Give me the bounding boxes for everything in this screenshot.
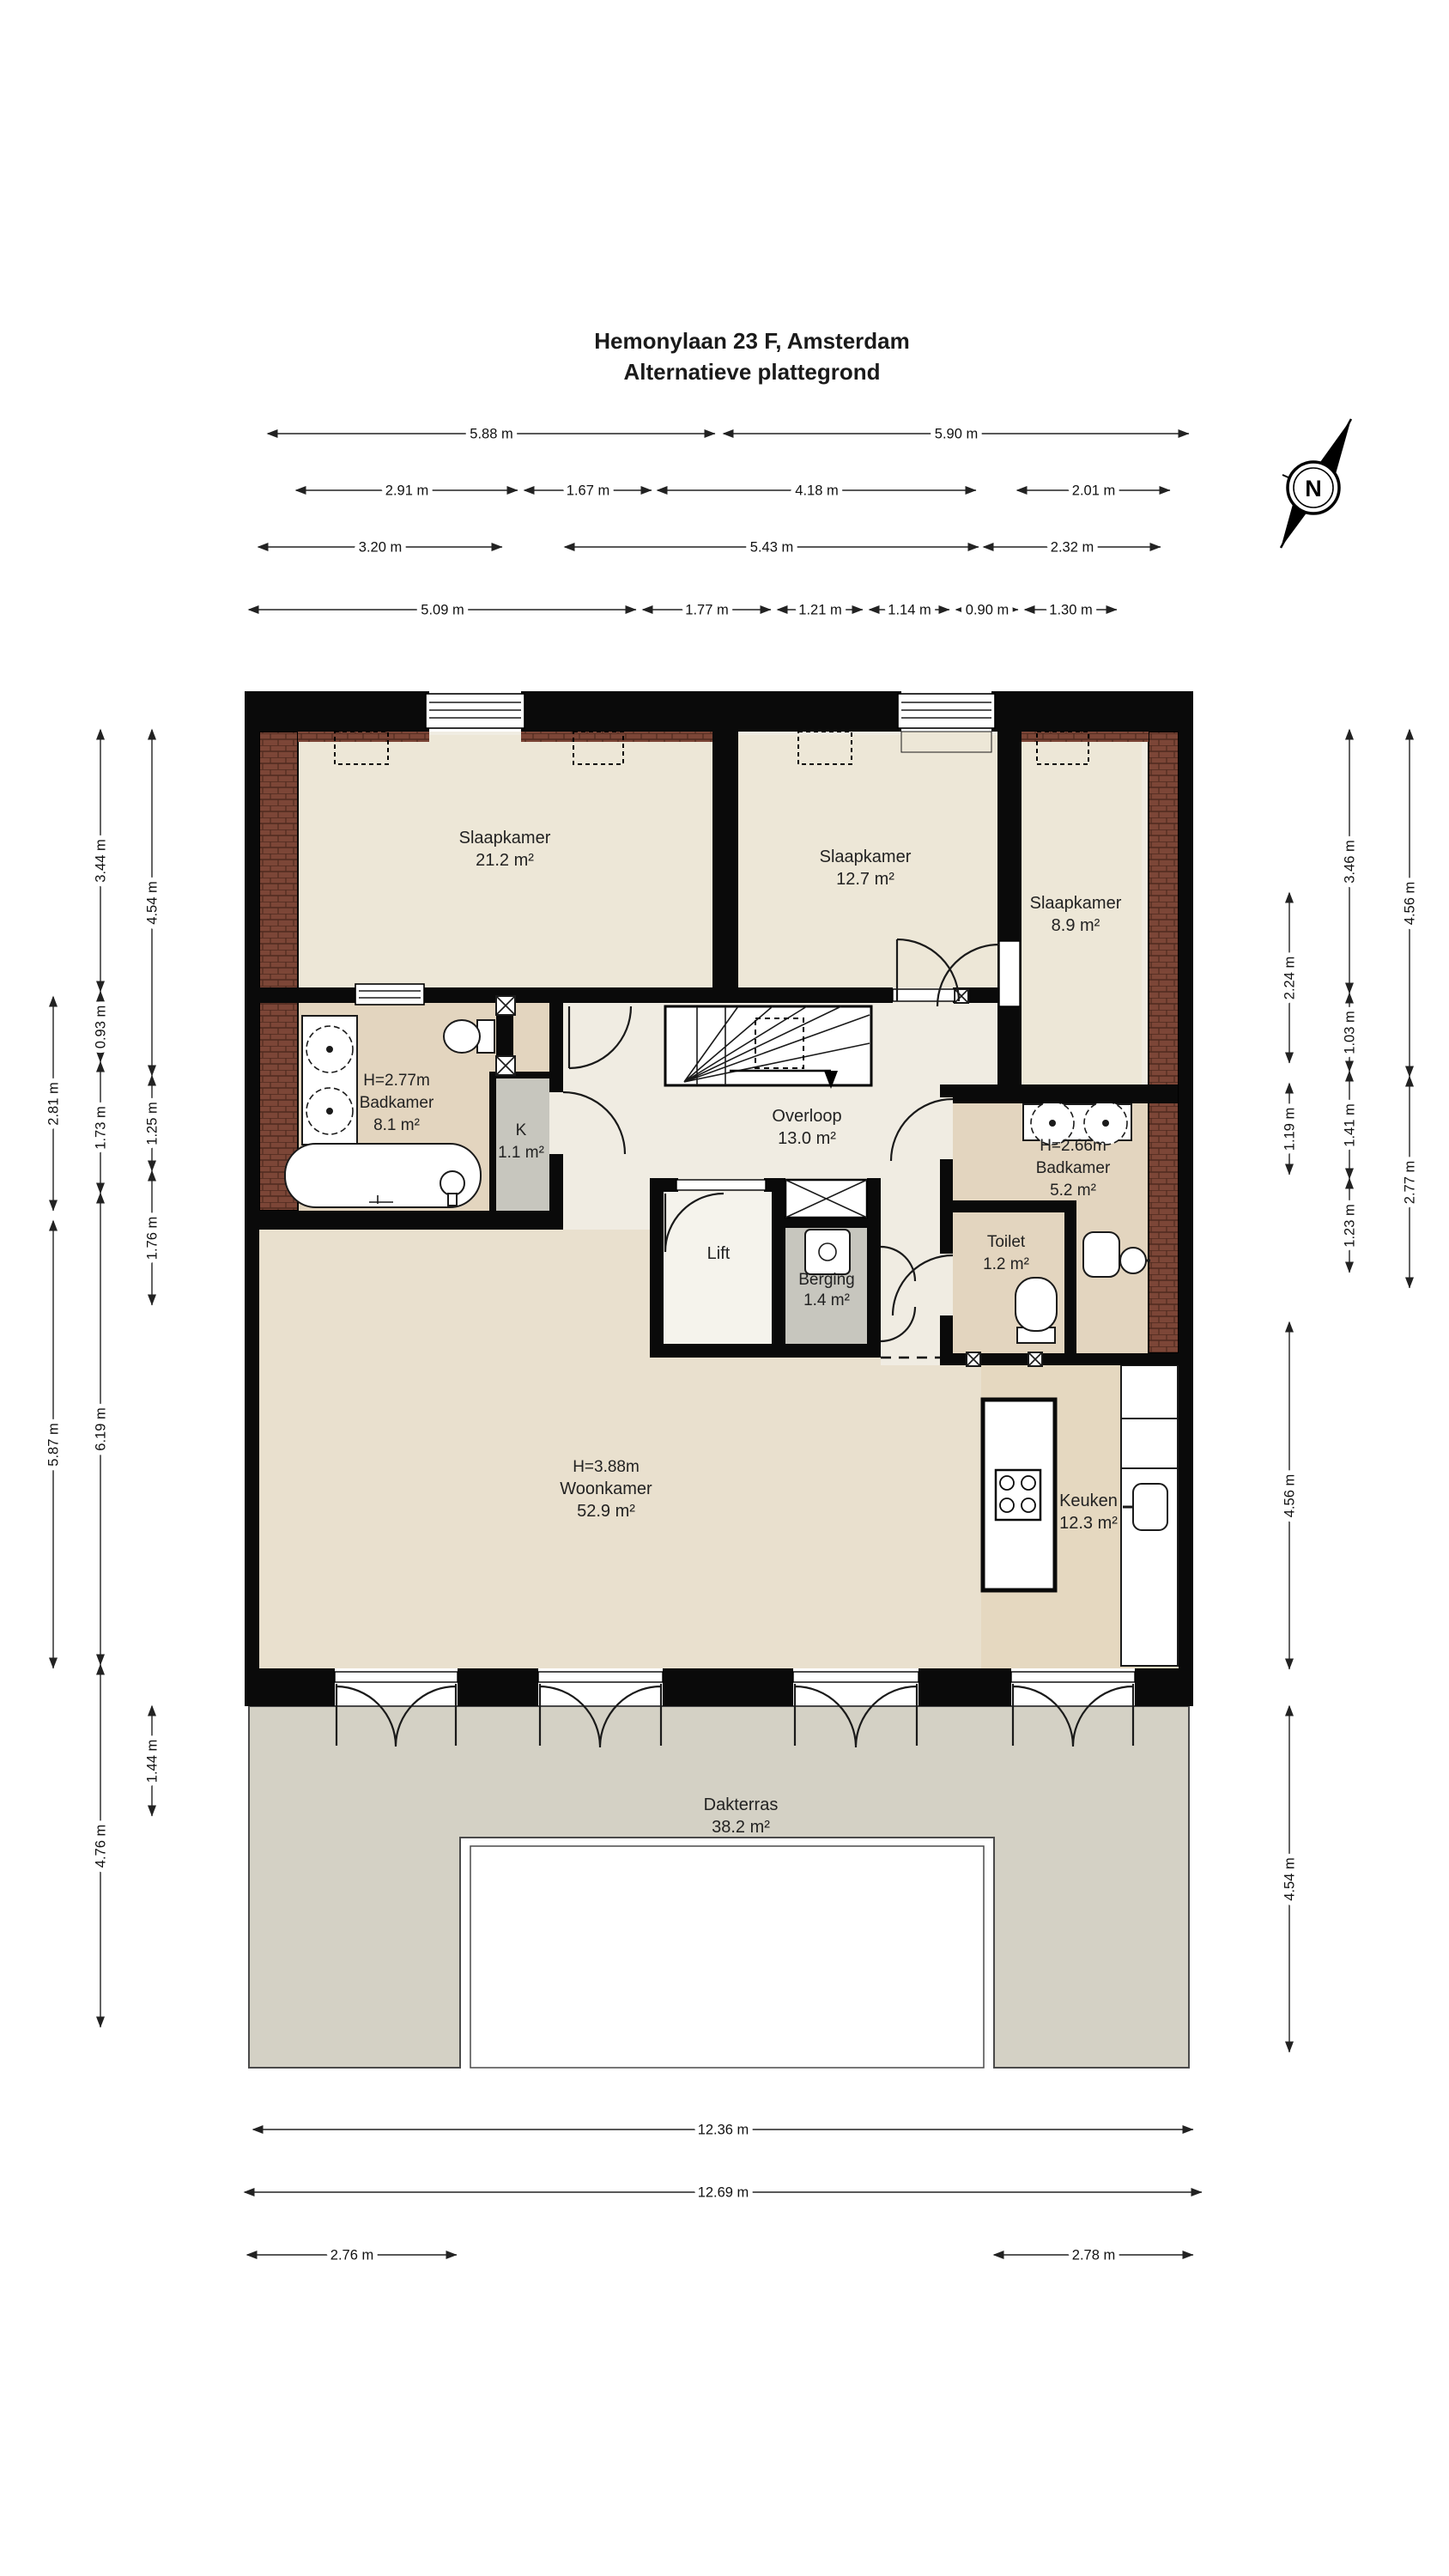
dimension-label: 2.91 m [385, 483, 428, 499]
dimension: 4.54 m [145, 730, 161, 1076]
label-badkamer-2-height: H=2.66m [1040, 1137, 1106, 1155]
compass-icon: N [1281, 419, 1351, 548]
dimension: 2.24 m [1282, 893, 1298, 1063]
label-slaapkamer-3-name: Slaapkamer [1030, 894, 1122, 913]
stairs [665, 1006, 871, 1089]
dimension-label: 1.23 m [1343, 1204, 1358, 1247]
dimension: 2.76 m [247, 2248, 457, 2263]
label-woonkamer-area: 52.9 m² [577, 1502, 635, 1521]
label-berging-area: 1.4 m² [803, 1291, 850, 1309]
title-subtitle: Alternatieve plattegrond [623, 359, 880, 385]
dimension-label: 4.18 m [795, 483, 838, 499]
dimension: 0.93 m [94, 992, 109, 1062]
terrace-door-threshold [538, 1672, 663, 1682]
dimension-label: 5.90 m [935, 427, 978, 442]
label-keuken-area: 12.3 m² [1059, 1514, 1118, 1533]
label-toilet-area: 1.2 m² [983, 1255, 1029, 1273]
dimension-label: 1.14 m [888, 603, 931, 618]
terrace-door-threshold [1011, 1672, 1135, 1682]
dimension-label: 4.56 m [1282, 1474, 1298, 1517]
label-dakterras-name: Dakterras [704, 1795, 779, 1814]
label-toilet-name: Toilet [987, 1233, 1026, 1251]
label-badkamer-1-name: Badkamer [360, 1094, 434, 1112]
dimension-label: 12.36 m [698, 2123, 749, 2138]
label-badkamer-2-area: 5.2 m² [1050, 1182, 1096, 1200]
dimension-label: 4.56 m [1403, 882, 1418, 925]
label-kast-name: K [516, 1121, 527, 1139]
label-slaapkamer-2-area: 12.7 m² [836, 870, 894, 889]
dimension: 4.18 m [658, 483, 976, 499]
dimension: 4.54 m [1282, 1706, 1298, 2052]
dimension-label: 2.81 m [46, 1082, 62, 1125]
wardrobe-icon [785, 1180, 867, 1218]
vanity-double-sink-icon [302, 1016, 357, 1145]
dimension-label: 6.19 m [94, 1407, 109, 1450]
door-threshold [999, 941, 1020, 1006]
dimension: 1.44 m [145, 1706, 161, 1816]
dimension: 5.90 m [724, 427, 1189, 442]
dimension: 5.88 m [268, 427, 715, 442]
dimension: 1.14 m [870, 603, 949, 618]
label-kast-area: 1.1 m² [498, 1144, 544, 1162]
window [355, 984, 424, 1005]
room-dakterras [249, 1706, 1189, 2068]
dimension: 1.67 m [524, 483, 652, 499]
dimension: 6.19 m [94, 1194, 109, 1665]
window [426, 694, 524, 728]
dimension-label: 2.32 m [1051, 540, 1094, 556]
label-overloop-area: 13.0 m² [778, 1129, 836, 1148]
toilet-icon [444, 1015, 513, 1056]
dimension: 3.44 m [94, 730, 109, 992]
dimension-label: 3.44 m [94, 839, 109, 882]
dimension-label: 2.77 m [1403, 1161, 1418, 1204]
compass-north-label: N [1305, 476, 1322, 501]
dimension-label: 5.09 m [421, 603, 464, 618]
label-slaapkamer-1-area: 21.2 m² [476, 851, 534, 870]
dimension-label: 2.76 m [330, 2248, 373, 2263]
kitchen-island [983, 1400, 1055, 1590]
dimension-label: 12.69 m [698, 2185, 749, 2201]
dimension: 4.76 m [94, 1665, 109, 2027]
label-dakterras-area: 38.2 m² [712, 1818, 770, 1837]
dimension-label: 4.54 m [1282, 1857, 1298, 1900]
label-badkamer-1-height: H=2.77m [363, 1072, 430, 1090]
dimension: 1.19 m [1282, 1084, 1298, 1175]
kitchen-sink-icon [1133, 1484, 1167, 1530]
dimension-label: 1.41 m [1343, 1103, 1358, 1146]
dimension: 4.56 m [1403, 730, 1418, 1077]
terrace-door-threshold [335, 1672, 458, 1682]
dimension-label: 3.46 m [1343, 840, 1358, 883]
label-lift-name: Lift [707, 1244, 731, 1263]
toilet-icon [1016, 1278, 1057, 1343]
dimension-label: 3.20 m [359, 540, 402, 556]
floor-plan-canvas: Hemonylaan 23 F, Amsterdam Alternatieve … [0, 0, 1449, 2576]
lift-door [676, 1180, 766, 1190]
kitchen-counter [1121, 1365, 1178, 1666]
dimension-label: 1.03 m [1343, 1011, 1358, 1054]
dimension: 1.25 m [145, 1076, 161, 1171]
dimension: 2.32 m [984, 540, 1161, 556]
dimension-label: 2.78 m [1072, 2248, 1115, 2263]
label-badkamer-1-area: 8.1 m² [373, 1116, 420, 1134]
label-berging-name: Berging [798, 1271, 855, 1289]
dimension-label: 1.73 m [94, 1106, 109, 1149]
label-overloop-name: Overloop [772, 1107, 841, 1126]
dimension-label: 1.44 m [145, 1740, 161, 1783]
dimension-label: 5.43 m [750, 540, 793, 556]
door-threshold [893, 989, 955, 1001]
dimension-label: 1.21 m [798, 603, 841, 618]
dimension: 1.21 m [778, 603, 863, 618]
dimension: 5.87 m [46, 1221, 62, 1668]
washer-icon [805, 1230, 850, 1274]
room-lift [664, 1192, 772, 1346]
terrace-door-threshold [793, 1672, 919, 1682]
title-address: Hemonylaan 23 F, Amsterdam [594, 328, 910, 354]
dimension: 3.20 m [258, 540, 502, 556]
dimension-label: 1.76 m [145, 1217, 161, 1260]
dimension-label: 2.01 m [1072, 483, 1115, 499]
dimension-label: 2.24 m [1282, 957, 1298, 999]
dimension: 12.36 m [253, 2123, 1193, 2138]
dimension-label: 4.76 m [94, 1825, 109, 1868]
label-slaapkamer-2-name: Slaapkamer [820, 848, 912, 866]
dimension: 1.03 m [1343, 993, 1358, 1072]
dimension: 1.76 m [145, 1171, 161, 1305]
dimension: 1.77 m [643, 603, 771, 618]
dimension-label: 5.87 m [46, 1423, 62, 1466]
dimension: 2.77 m [1403, 1077, 1418, 1288]
dimension-label: 1.67 m [567, 483, 609, 499]
dimension-label: 1.25 m [145, 1102, 161, 1145]
dimension: 3.46 m [1343, 730, 1358, 993]
dimension: 5.09 m [249, 603, 636, 618]
dimension-label: 5.88 m [470, 427, 512, 442]
dimension: 1.41 m [1343, 1072, 1358, 1179]
dimension-label: 1.19 m [1282, 1108, 1298, 1151]
dimension-label: 1.77 m [685, 603, 728, 618]
dimension: 2.78 m [994, 2248, 1193, 2263]
page-title: Hemonylaan 23 F, Amsterdam Alternatieve … [594, 328, 910, 385]
label-keuken-name: Keuken [1059, 1492, 1118, 1510]
dimension: 2.01 m [1017, 483, 1170, 499]
stool-icon [440, 1171, 464, 1195]
dimension: 1.23 m [1343, 1179, 1358, 1273]
dimension-label: 0.93 m [94, 1005, 109, 1048]
dimension: 0.90 m [956, 603, 1018, 618]
dimension-label: 0.90 m [966, 603, 1009, 618]
dimension: 12.69 m [245, 2185, 1202, 2201]
window [898, 694, 995, 728]
dimension: 1.30 m [1025, 603, 1117, 618]
dimension: 2.91 m [296, 483, 518, 499]
dimension-label: 4.54 m [145, 881, 161, 924]
dimension-label: 1.30 m [1049, 603, 1092, 618]
dimension: 1.73 m [94, 1062, 109, 1194]
label-slaapkamer-1-name: Slaapkamer [459, 829, 551, 848]
label-woonkamer-height: H=3.88m [573, 1458, 640, 1476]
dimension: 2.81 m [46, 997, 62, 1211]
label-woonkamer-name: Woonkamer [560, 1479, 652, 1498]
terrace-void [470, 1846, 984, 2068]
dimension: 5.43 m [565, 540, 979, 556]
label-slaapkamer-3-area: 8.9 m² [1052, 916, 1100, 935]
dimension: 4.56 m [1282, 1322, 1298, 1669]
label-badkamer-2-name: Badkamer [1036, 1159, 1111, 1177]
